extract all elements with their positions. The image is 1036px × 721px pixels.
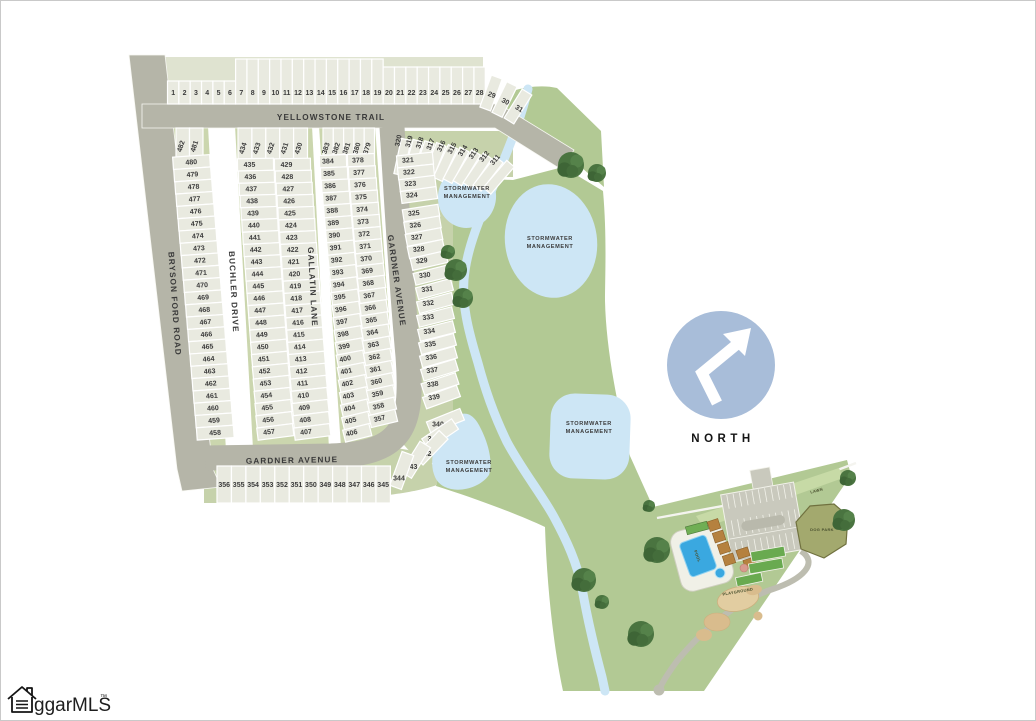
- lot-number: 356: [218, 482, 230, 489]
- lot-number: 453: [259, 380, 271, 388]
- lot-number: 345: [377, 482, 389, 489]
- lot-number: 412: [295, 368, 307, 376]
- stormwater-text: MANAGEMENT: [566, 429, 613, 435]
- lot-number: 4: [205, 90, 209, 97]
- lot-number: 389: [327, 220, 339, 228]
- lot-number: 461: [206, 393, 218, 401]
- lot-number: 390: [328, 232, 340, 240]
- lot-number: 352: [276, 482, 288, 489]
- lot-number: 416: [292, 319, 304, 327]
- lot-number: 22: [408, 90, 416, 97]
- lot-number: 349: [320, 482, 332, 489]
- lot-number: 8: [251, 90, 255, 97]
- lot-number: 419: [289, 283, 301, 291]
- lot: [304, 59, 315, 104]
- playground-blob-5: [696, 629, 712, 641]
- lot-number: 344: [393, 475, 405, 482]
- lot-number: 440: [248, 222, 260, 229]
- lot-number: 475: [191, 220, 203, 228]
- lot-number: 426: [283, 198, 295, 205]
- lot-number: 480: [185, 159, 197, 167]
- lot-number: 15: [328, 90, 336, 97]
- watermark-logo: ggarMLS ™: [8, 687, 111, 716]
- lot-number: 387: [325, 195, 337, 203]
- lot-number: 460: [207, 405, 219, 413]
- street-label-gardner-avenue-horizontal: GARDNER AVENUE: [246, 455, 338, 466]
- lot-number: 438: [246, 198, 258, 205]
- lot-number: 388: [326, 207, 338, 215]
- lot-number: 19: [374, 90, 382, 97]
- lot: [315, 59, 326, 104]
- lot-number: 9: [262, 90, 266, 97]
- lot-number: 385: [323, 170, 335, 178]
- lot-number: 375: [355, 194, 367, 202]
- stormwater-text: STORMWATER: [566, 421, 612, 427]
- lot-number: 463: [204, 368, 216, 376]
- lot-number: 462: [205, 380, 217, 388]
- lot-number: 14: [317, 90, 325, 97]
- lot-number: 7: [239, 90, 243, 97]
- playground-blob-2: [704, 613, 730, 631]
- lot-number: 413: [295, 356, 307, 364]
- lot: [395, 67, 406, 104]
- lot: [429, 67, 440, 104]
- lot-number: 324: [406, 192, 418, 200]
- lot-number: 6: [228, 90, 232, 97]
- lot-number: 378: [352, 157, 364, 164]
- lot-number: 417: [291, 307, 303, 315]
- lot-number: 415: [293, 332, 305, 340]
- lot-number: 439: [247, 210, 259, 217]
- lot-number: 321: [402, 157, 414, 165]
- lot-number: 436: [244, 174, 256, 181]
- stormwater-text: STORMWATER: [527, 236, 573, 242]
- north-arrow-circle: [667, 311, 775, 419]
- lot-number: 21: [396, 90, 404, 97]
- lot-number: 325: [408, 210, 420, 218]
- lot-number: 24: [430, 90, 438, 97]
- lot: [406, 67, 417, 104]
- lot: [349, 59, 360, 104]
- lot-number: 451: [258, 356, 270, 364]
- lot-number: 468: [198, 307, 210, 315]
- map-svg: 1234567891011121314151617181920212223242…: [1, 1, 1036, 721]
- street-label-yellowstone-trail: YELLOWSTONE TRAIL: [277, 113, 385, 122]
- lot: [236, 59, 247, 104]
- lot-number: 456: [262, 416, 275, 424]
- lot-number: 377: [353, 169, 365, 177]
- lot-number: 328: [413, 246, 425, 254]
- path-end-circle: [654, 685, 665, 696]
- lot-number: 326: [409, 222, 421, 230]
- kiddie-pool: [715, 568, 725, 578]
- street-label-buchler-drive: BUCHLER DRIVE: [227, 251, 240, 333]
- stormwater-text: MANAGEMENT: [527, 244, 574, 250]
- lot-number: 429: [281, 162, 293, 169]
- lot-number: 393: [331, 269, 344, 277]
- lot: [338, 59, 349, 104]
- dog-park-label: DOG PARK: [810, 527, 834, 532]
- lot: [463, 67, 474, 104]
- lot-number: 17: [351, 90, 359, 97]
- lot-number: 386: [324, 183, 336, 191]
- lot: [247, 59, 258, 104]
- lot-number: 472: [194, 257, 206, 265]
- lot: [292, 59, 303, 104]
- lot-number: 414: [294, 344, 306, 352]
- spa-feature: [740, 564, 748, 572]
- lot-number: 455: [261, 404, 274, 412]
- lot-number: 409: [298, 404, 311, 412]
- lot-number: 354: [247, 482, 259, 489]
- lot-number: 474: [192, 233, 204, 241]
- lot: [360, 59, 371, 104]
- lot-number: 334: [423, 328, 436, 336]
- lot-number: 427: [282, 186, 294, 193]
- lot-number: 18: [362, 90, 370, 97]
- lot-number: 422: [287, 247, 299, 255]
- lot-number: 351: [291, 482, 303, 489]
- lot-number: 446: [253, 295, 265, 303]
- lot: [451, 67, 462, 104]
- lot-number: 376: [354, 182, 366, 190]
- lot-number: 420: [288, 271, 300, 279]
- lot-number: 452: [258, 368, 270, 376]
- lot-number: 329: [416, 257, 429, 265]
- watermark-tm: ™: [100, 694, 107, 701]
- lot-number: 355: [233, 482, 245, 489]
- site-plan-map: 1234567891011121314151617181920212223242…: [0, 0, 1036, 721]
- stormwater-text: MANAGEMENT: [444, 194, 491, 200]
- lot-number: 477: [189, 196, 201, 204]
- lot-number: 421: [288, 259, 300, 267]
- lot: [258, 59, 269, 104]
- stormwater-text: MANAGEMENT: [446, 468, 493, 474]
- lot-number: 478: [187, 184, 199, 192]
- lot-number: 444: [251, 271, 263, 279]
- lot-number: 471: [195, 270, 207, 278]
- lot-number: 2: [183, 90, 187, 97]
- lot-number: 371: [359, 243, 371, 251]
- lot-number: 348: [334, 482, 346, 489]
- lot-number: 28: [476, 90, 484, 97]
- lot-number: 373: [357, 218, 369, 226]
- lot-number: 11: [283, 90, 291, 97]
- lot-number: 27: [464, 90, 472, 97]
- lot-number: 469: [197, 294, 209, 302]
- lot-number: 450: [257, 344, 269, 352]
- lot-number: 330: [419, 272, 432, 280]
- lot-number: 12: [294, 90, 302, 97]
- lot: [383, 67, 394, 104]
- lot: [417, 67, 428, 104]
- lot-number: 10: [271, 90, 279, 97]
- lot-number: 467: [199, 319, 211, 327]
- lot: [281, 59, 292, 104]
- lot-number: 458: [209, 430, 221, 438]
- lot-number: 425: [284, 210, 296, 217]
- lot: [440, 67, 451, 104]
- lot-number: 384: [322, 158, 334, 165]
- lot-number: 447: [254, 307, 266, 315]
- lot-number: 353: [262, 482, 274, 489]
- lot-number: 323: [404, 181, 416, 189]
- lot-number: 459: [208, 417, 220, 425]
- lot-number: 473: [193, 245, 205, 253]
- lot-number: 20: [385, 90, 393, 97]
- lot: [372, 59, 383, 104]
- lot-number: 437: [245, 186, 257, 193]
- house-icon: [8, 687, 36, 712]
- lot-number: 449: [256, 332, 268, 340]
- lot-number: 346: [363, 482, 375, 489]
- north-arrow: NORTH: [667, 311, 775, 445]
- lot-number: 13: [306, 90, 314, 97]
- lot: [270, 59, 281, 104]
- lot-number: 391: [329, 244, 341, 252]
- lot-number: 322: [403, 169, 415, 177]
- pond-southeast: [549, 393, 632, 481]
- lot-number: 372: [358, 231, 370, 239]
- lot-number: 476: [190, 208, 202, 216]
- lot-number: 441: [249, 235, 261, 243]
- lot-number: 465: [202, 343, 214, 351]
- stormwater-text: STORMWATER: [444, 186, 490, 192]
- lot-number: 23: [419, 90, 427, 97]
- lot-number: 454: [260, 392, 272, 400]
- lot-number: 333: [422, 314, 435, 322]
- lot-number: 464: [203, 356, 215, 364]
- lot-number: 408: [299, 416, 312, 424]
- stormwater-text: STORMWATER: [446, 460, 492, 466]
- lot-number: 445: [252, 283, 264, 291]
- lot-number: 16: [340, 90, 348, 97]
- playground-blob-4: [754, 612, 763, 621]
- lot-number: 407: [300, 428, 313, 436]
- lot-number: 369: [361, 267, 374, 275]
- lot-number: 411: [297, 380, 309, 388]
- lot-number: 392: [330, 257, 342, 265]
- lot-number: 428: [281, 174, 293, 181]
- lot-number: 370: [360, 255, 372, 263]
- lot: [326, 59, 337, 104]
- lot-number: 423: [286, 235, 298, 243]
- lot-number: 435: [244, 162, 256, 169]
- lot-number: 5: [217, 90, 221, 97]
- lot-number: 1: [171, 90, 175, 97]
- lot-number: 327: [411, 234, 423, 242]
- lot-number: 374: [356, 206, 368, 214]
- lot-number: 424: [285, 222, 297, 229]
- lot-number: 479: [186, 171, 198, 179]
- lot-number: 347: [348, 482, 360, 489]
- lot-number: 443: [251, 259, 263, 267]
- lot-number: 410: [297, 392, 309, 400]
- lot-number: 448: [255, 319, 267, 327]
- north-label: NORTH: [691, 433, 754, 445]
- lot-number: 26: [453, 90, 461, 97]
- lot-number: 3: [194, 90, 198, 97]
- lot-number: 418: [290, 295, 302, 303]
- lot-number: 470: [196, 282, 208, 290]
- lot-number: 442: [250, 247, 262, 255]
- lot-number: 350: [305, 482, 317, 489]
- lot-number: 25: [442, 90, 450, 97]
- lot-number: 457: [263, 428, 276, 436]
- lot-number: 466: [200, 331, 212, 339]
